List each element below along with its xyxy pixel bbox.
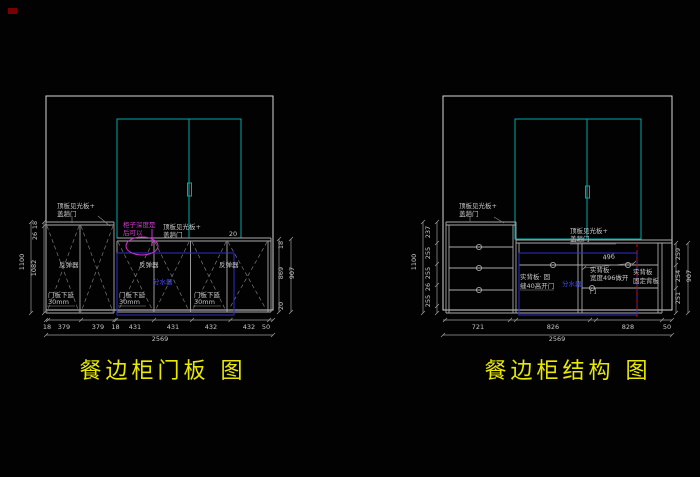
dim-total-label: 2569 xyxy=(549,335,566,343)
rebound-label: 反弹器 xyxy=(59,260,79,269)
dim-label: 259 xyxy=(674,248,682,260)
dim-label: 431 xyxy=(167,323,179,331)
dim-label: 254 xyxy=(674,270,682,282)
top-panel-note: 顶板见光板+ xyxy=(459,201,497,210)
dim-label: 826 xyxy=(547,323,559,331)
dim-label: 20 xyxy=(277,302,285,310)
top-panel-note: 顶板见光板+ xyxy=(163,222,201,231)
back-panel-note: 门 xyxy=(590,286,597,295)
door-drop-note: 30mm xyxy=(48,298,69,306)
blue-label: 分水器 xyxy=(562,279,582,288)
top-panel-note: 盖趟门 xyxy=(459,209,479,218)
dim-label: 26 xyxy=(31,232,39,240)
back-panel-note: 宽度496做开 xyxy=(590,273,629,282)
right-drawing: 顶板见光板+ 盖趟门 顶板见光板+ 盖趟门 实背板· 固 缝40高开门 实背板·… xyxy=(410,96,693,343)
dim-total-label: 1100 xyxy=(18,254,26,271)
dim-total-label: 907 xyxy=(685,270,693,282)
dim-label: 50 xyxy=(663,323,671,331)
dim-label: 828 xyxy=(622,323,634,331)
top-panel-note: 顶板见光板+ xyxy=(57,201,95,210)
dim-label: 431 xyxy=(129,323,141,331)
back-panel-note: 实背板 xyxy=(633,267,653,276)
top-panel-note: 盖趟门 xyxy=(57,209,77,218)
dim-label: 255 xyxy=(424,247,432,259)
dim-total-label: 907 xyxy=(288,267,296,279)
left-drawing-title: 餐边柜门板 图 xyxy=(80,359,247,384)
cad-viewport: 顶板见光板+ 盖趟门 顶板见光板+ 盖趟门 柜子深度是 后可以 反弹器 反弹器 … xyxy=(0,0,700,477)
dim-label: 379 xyxy=(92,323,104,331)
dim-label: 18 xyxy=(43,323,51,331)
dim-total-label: 2569 xyxy=(152,335,169,343)
right-sliding-doors xyxy=(515,119,641,239)
dim-label: 721 xyxy=(472,323,484,331)
dim-label: 869 xyxy=(277,267,285,279)
rebound-label: 反弹器 xyxy=(219,260,239,269)
dim-label: 251 xyxy=(674,292,682,304)
dim-label: 255 xyxy=(424,295,432,307)
back-panel-note: 实背板· xyxy=(590,265,612,274)
rebound-label: 反弹器 xyxy=(139,260,159,269)
top-panel-note: 盖趟门 xyxy=(163,230,183,239)
door-drop-note: 30mm xyxy=(194,298,215,306)
dim-label: 496 xyxy=(602,252,615,261)
dim-label: 432 xyxy=(205,323,217,331)
corner-marker xyxy=(8,8,17,14)
right-drawer-cabinet xyxy=(446,222,516,313)
dim-label: 20 xyxy=(229,230,237,238)
magenta-note: 柜子深度是 xyxy=(123,220,156,229)
dim-label: 1082 xyxy=(30,260,38,277)
dim-total-label: 1100 xyxy=(410,254,418,271)
dim-label: 18 xyxy=(31,221,39,229)
blue-label: 分水器 xyxy=(153,277,173,286)
left-drawing: 顶板见光板+ 盖趟门 顶板见光板+ 盖趟门 柜子深度是 后可以 反弹器 反弹器 … xyxy=(18,96,296,343)
dim-label: 432 xyxy=(243,323,255,331)
dim-label: 26 xyxy=(424,283,432,291)
dim-label: 237 xyxy=(424,226,432,238)
back-panel-note: 固定背板 xyxy=(633,276,660,285)
top-panel-note: 盖趟门 xyxy=(570,234,590,243)
cad-canvas: 顶板见光板+ 盖趟门 顶板见光板+ 盖趟门 柜子深度是 后可以 反弹器 反弹器 … xyxy=(0,0,700,477)
dim-label: 18 xyxy=(111,323,119,331)
top-panel-note: 顶板见光板+ xyxy=(570,226,608,235)
magenta-note: 后可以 xyxy=(123,228,143,237)
dim-label: 379 xyxy=(58,323,70,331)
back-panel-note: 缝40高开门 xyxy=(520,281,554,290)
back-panel-note: 实背板· 固 xyxy=(520,272,550,281)
dim-label: 50 xyxy=(262,323,270,331)
right-drawing-title: 餐边柜结构 图 xyxy=(485,359,652,384)
dim-label: 255 xyxy=(424,267,432,279)
door-drop-note: 30mm xyxy=(119,298,140,306)
dim-label: 18 xyxy=(277,241,285,249)
